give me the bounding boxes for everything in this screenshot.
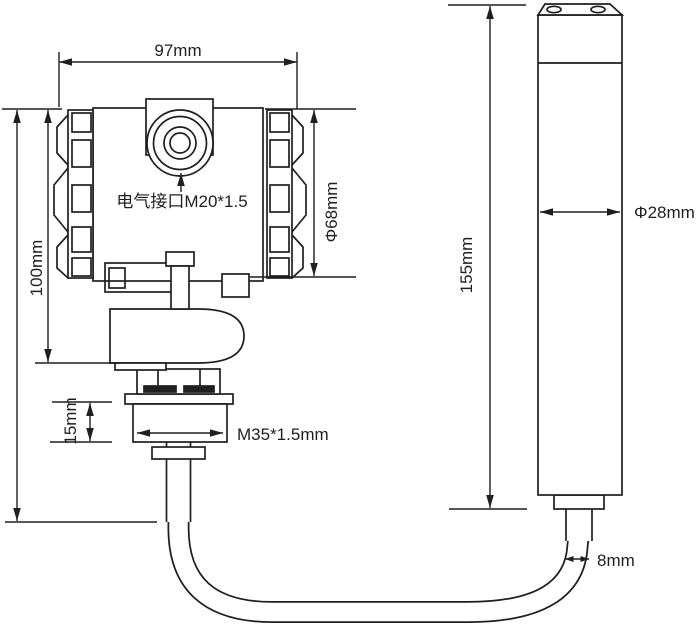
transmitter-head [54, 99, 306, 522]
right-fin-1 [270, 113, 289, 132]
left-fin-4 [72, 227, 91, 252]
left-fin-1 [72, 113, 91, 132]
port-ring-inner [170, 133, 190, 153]
probe-top-hole-left [547, 6, 561, 12]
coupling-lip [115, 363, 166, 370]
mounting-plate [125, 394, 233, 404]
probe [538, 4, 622, 541]
label-probe-diameter: Φ28mm [634, 203, 695, 222]
bolt-head-right [184, 386, 214, 392]
label-head-diameter: Φ68mm [322, 182, 341, 243]
left-fin-serration-2 [54, 168, 68, 232]
stem-cap [166, 252, 194, 266]
label-head-width: 97mm [154, 41, 201, 60]
probe-tail2-fill [566, 509, 592, 541]
right-fin-3 [270, 185, 289, 212]
right-fin-5 [270, 258, 289, 276]
left-fin-serration-1 [57, 115, 68, 165]
drawing-canvas: 97mm 100mm Φ68mm 电气接口M20*1.5 15mm M35*1.… [0, 0, 700, 629]
probe-top-hole-right [591, 6, 605, 12]
left-fin-5 [72, 258, 91, 276]
probe-body [538, 15, 622, 495]
left-fin-2 [72, 140, 91, 167]
right-fin-4 [270, 227, 289, 252]
transmitter-dimension-drawing: 97mm 100mm Φ68mm 电气接口M20*1.5 15mm M35*1.… [0, 0, 700, 629]
label-mounting-thread: M35*1.5mm [237, 425, 329, 444]
right-fin-serration-3 [292, 235, 303, 278]
label-head-height: 100mm [27, 240, 46, 297]
label-probe-length: 155mm [457, 237, 476, 294]
right-fin-serration-2 [292, 168, 306, 232]
label-electrical-interface: 电气接口M20*1.5 [116, 192, 247, 211]
neck-collar [152, 447, 205, 459]
probe-tail1 [554, 495, 604, 509]
connection-cable [179, 516, 579, 612]
label-cable-diameter: 8mm [597, 551, 635, 570]
right-fin-serration-1 [292, 115, 303, 165]
dimension-lines [2, 5, 620, 559]
conduit-boss [222, 274, 249, 297]
left-fin-3 [72, 185, 91, 212]
left-fin-serration-3 [57, 235, 68, 278]
label-neck-height: 15mm [61, 397, 80, 444]
coupling-body [110, 309, 244, 363]
right-fin-2 [270, 140, 289, 167]
bolt-head-left [144, 386, 176, 392]
stem-post [171, 266, 189, 309]
thread-block [133, 404, 227, 442]
